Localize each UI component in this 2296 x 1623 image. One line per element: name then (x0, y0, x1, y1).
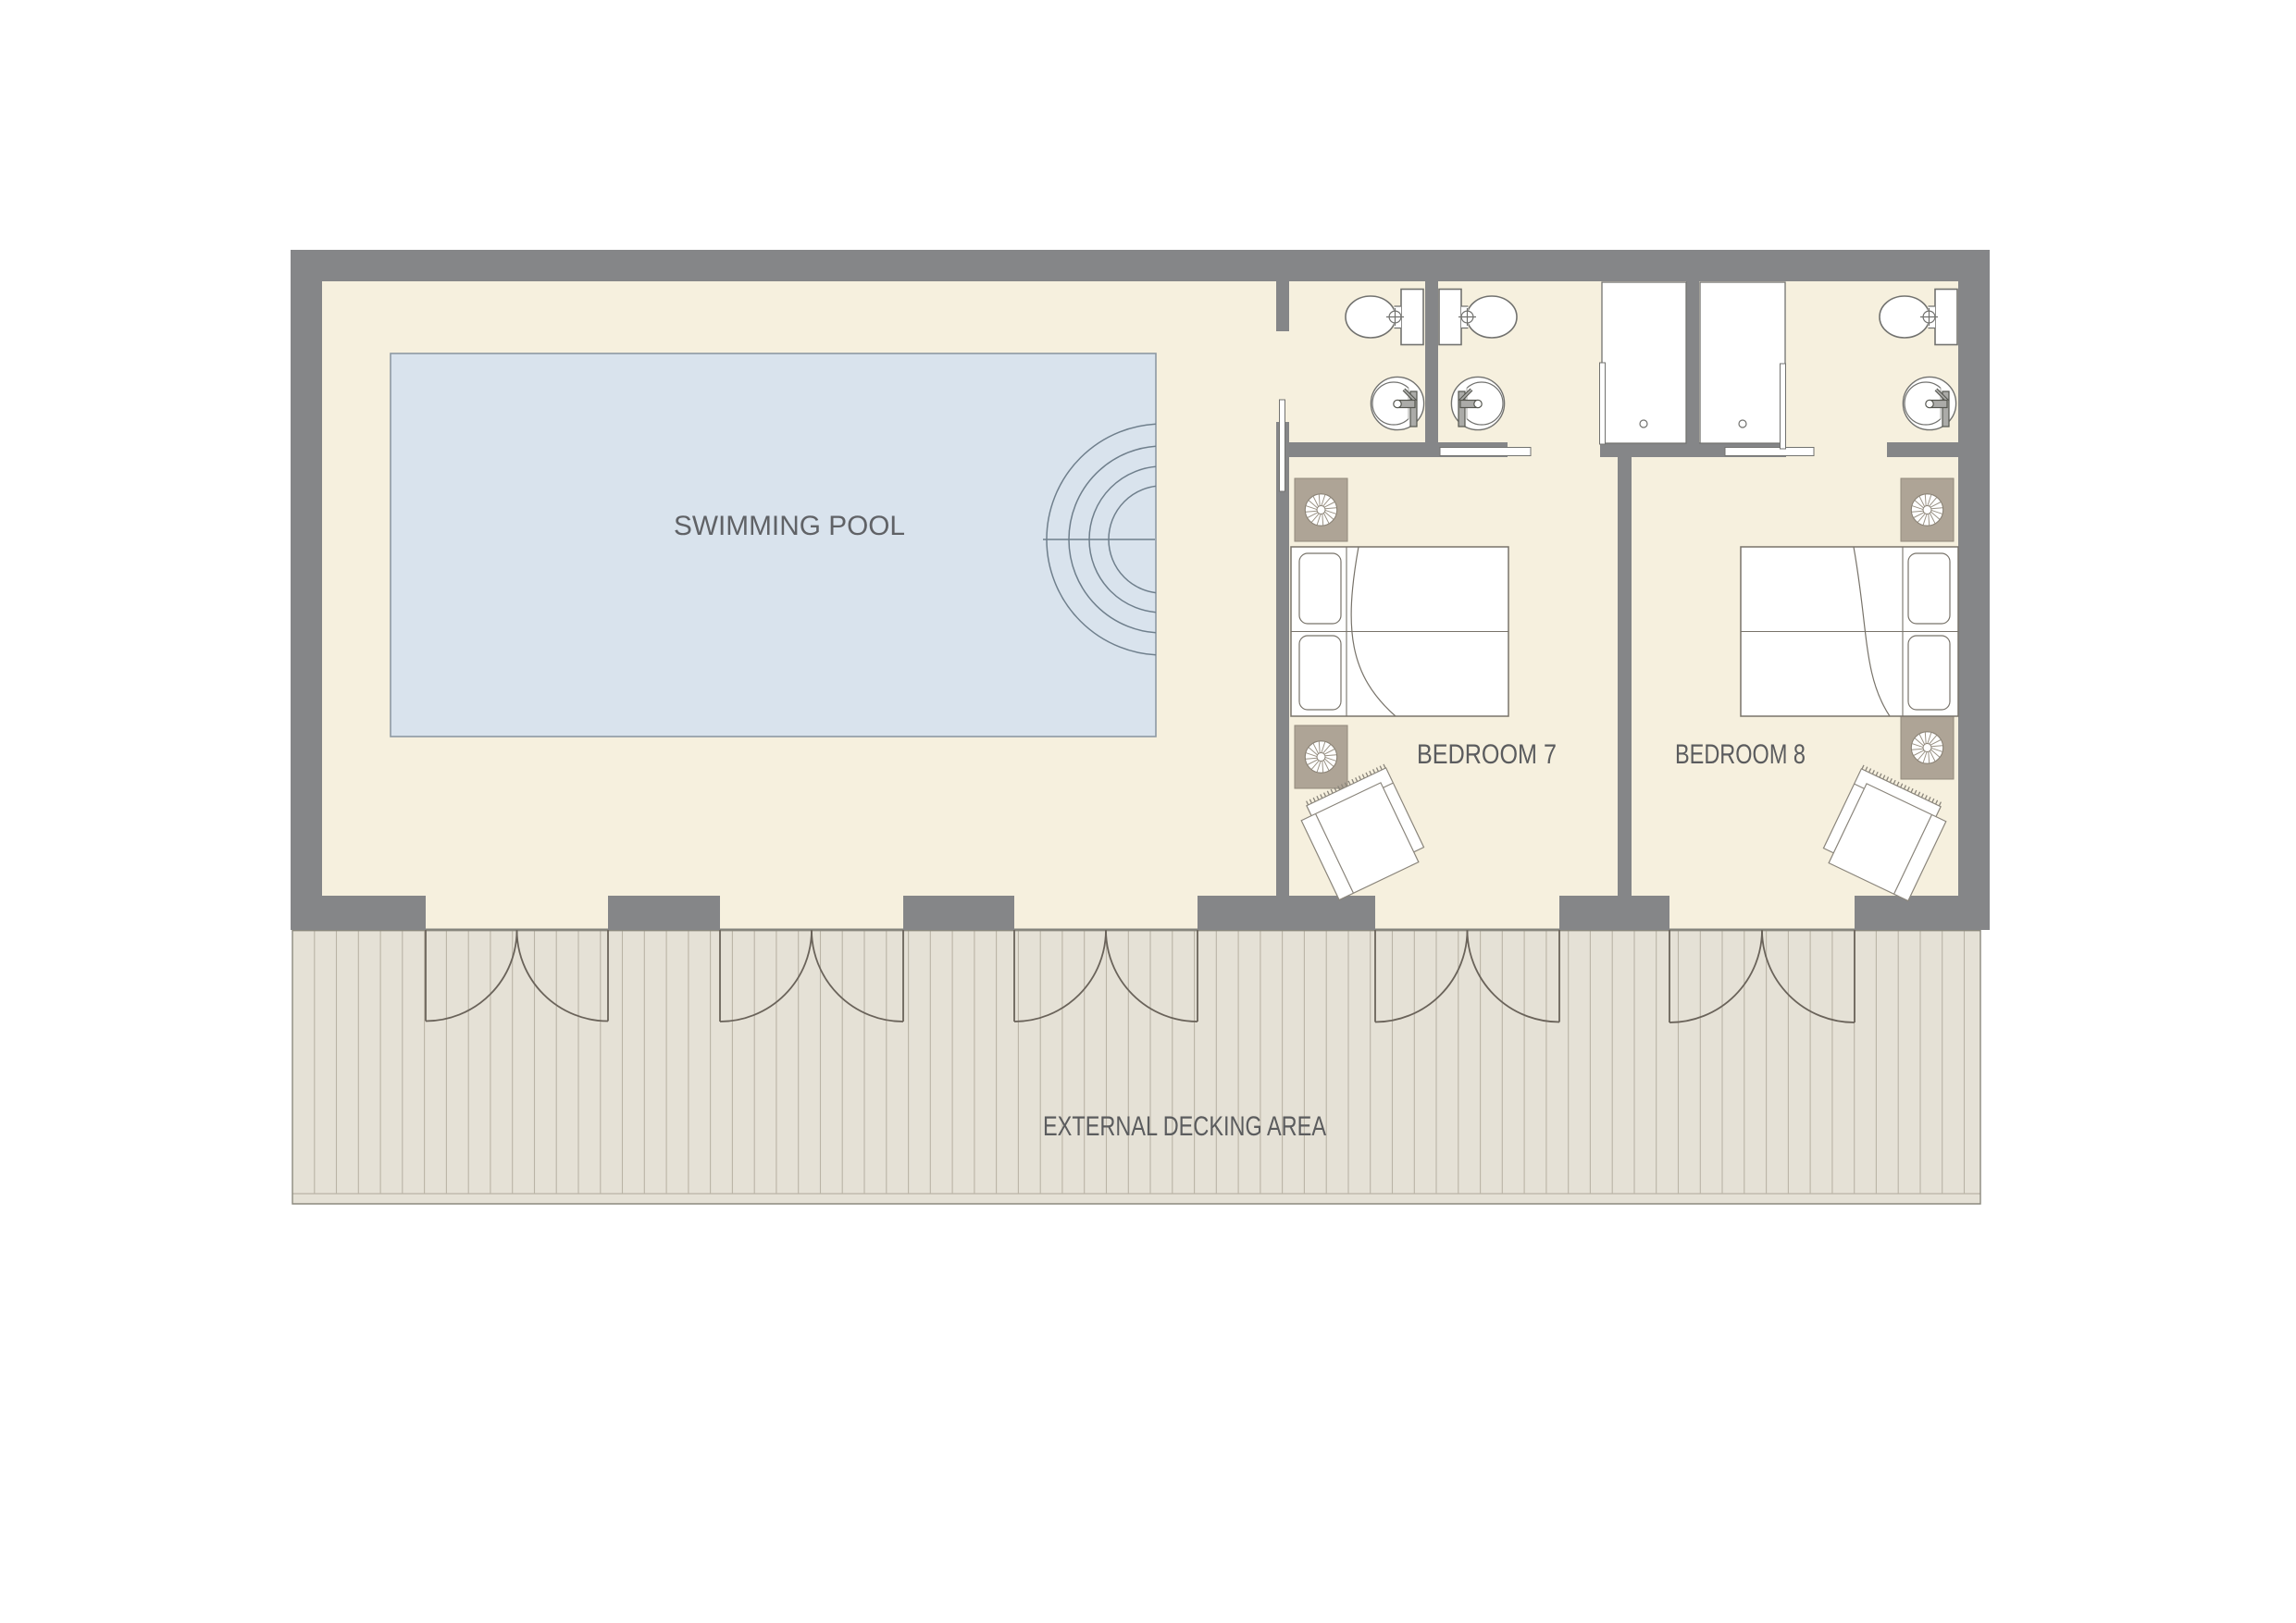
svg-text:BEDROOM 8: BEDROOM 8 (1675, 739, 1806, 770)
svg-text:EXTERNAL DECKING AREA: EXTERNAL DECKING AREA (1043, 1111, 1326, 1142)
svg-text:BEDROOM 7: BEDROOM 7 (1417, 739, 1557, 770)
svg-text:SWIMMING POOL: SWIMMING POOL (674, 511, 905, 541)
